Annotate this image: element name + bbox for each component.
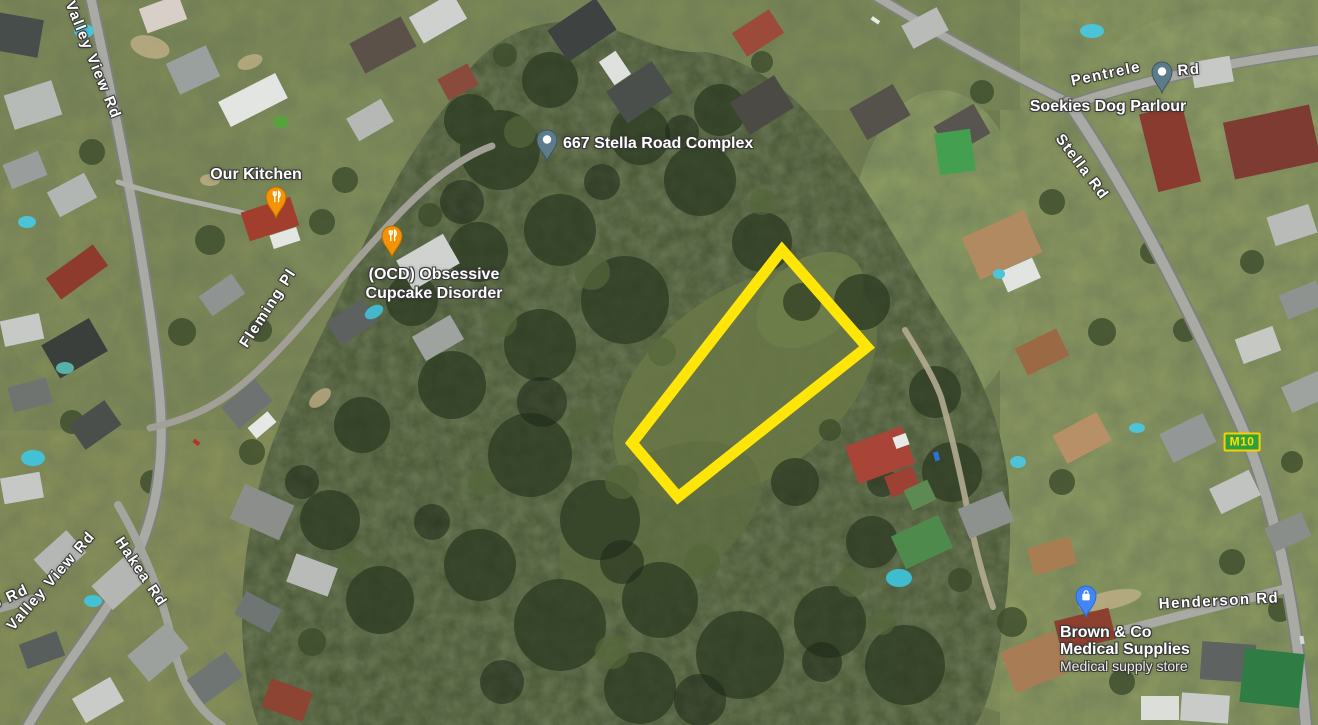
- poi-label-line2: Cupcake Disorder: [366, 284, 503, 303]
- map-canvas[interactable]: Valley View Rd Fleming Pl Pentrele Rd St…: [0, 0, 1318, 725]
- store-pin-icon[interactable]: [1074, 584, 1098, 618]
- map-labels-layer: Valley View Rd Fleming Pl Pentrele Rd St…: [0, 0, 1318, 725]
- poi-label-line2: Medical Supplies: [1060, 642, 1190, 659]
- route-badge-m10: M10: [1224, 433, 1261, 452]
- place-pin-icon[interactable]: [535, 128, 559, 162]
- poi-label-line1: Brown & Co: [1060, 625, 1190, 642]
- place-pin-icon[interactable]: [1150, 60, 1174, 94]
- road-label-pentrele: Pentrele: [1069, 58, 1142, 89]
- poi-label-line1: (OCD) Obsessive: [366, 265, 503, 284]
- road-label-valley-view-bottom: Valley View Rd: [3, 528, 98, 634]
- restaurant-pin-icon[interactable]: [380, 224, 404, 258]
- road-label-pentrele-rd: Rd: [1177, 61, 1201, 80]
- poi-label-our-kitchen[interactable]: Our Kitchen: [210, 166, 302, 184]
- poi-label-ocd-cupcake[interactable]: (OCD) Obsessive Cupcake Disorder: [366, 265, 503, 303]
- poi-label-subtitle: Medical supply store: [1060, 658, 1190, 675]
- poi-label-brown-and-co[interactable]: Brown & Co Medical Supplies Medical supp…: [1060, 625, 1190, 675]
- road-label-valley-view-top: Valley View Rd: [62, 0, 125, 121]
- road-label-stella-rd: Stella Rd: [1052, 131, 1112, 203]
- poi-label-soekies-dog-parlour[interactable]: Soekies Dog Parlour: [1030, 98, 1187, 116]
- road-label-henderson-rd: Henderson Rd: [1158, 589, 1279, 612]
- restaurant-pin-icon[interactable]: [264, 185, 288, 219]
- road-label-hakea-rd: Hakea Rd: [111, 534, 170, 610]
- road-label-fleming-pl: Fleming Pl: [236, 265, 300, 350]
- poi-label-667-stella-road-complex[interactable]: 667 Stella Road Complex: [563, 135, 753, 153]
